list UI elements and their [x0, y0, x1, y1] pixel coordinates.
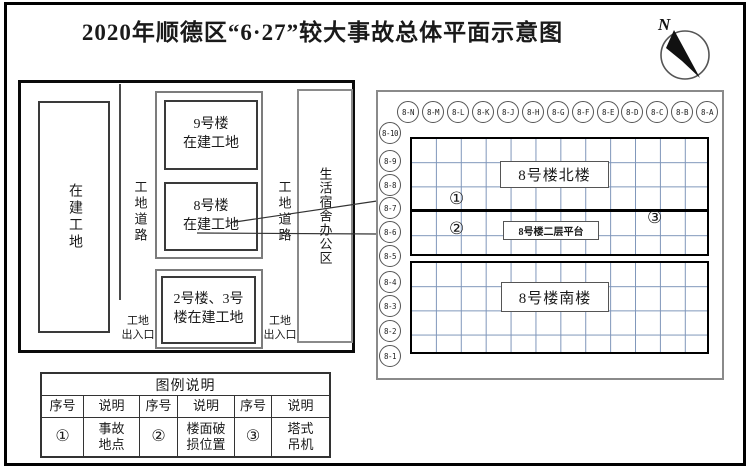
axis-circle-col: 8-G	[547, 101, 569, 123]
axis-circle-row: 8-1	[379, 345, 401, 367]
axis-circle-col: 8-A	[696, 101, 718, 123]
platform-label: 8号楼二层平台	[503, 221, 599, 240]
axis-circle-row: 8-10	[379, 122, 401, 144]
road-left-label: 工地道路	[131, 177, 149, 247]
accident-site-plan-diagram: 2020年顺德区“6·27”较大事故总体平面示意图 N 在建工地 工地道路 9号…	[0, 0, 752, 470]
zone-under-construction: 在建工地	[38, 101, 110, 333]
axis-circle-row: 8-5	[379, 245, 401, 267]
site-entrance-left-label: 工地 出入口	[115, 314, 161, 346]
site-entrance-right-label: 工地 出入口	[259, 314, 301, 346]
axis-circle-col: 8-D	[621, 101, 643, 123]
axis-circle-row: 8-2	[379, 320, 401, 342]
axis-circle-row: 8-8	[379, 174, 401, 196]
axis-circle-row: 8-9	[379, 150, 401, 172]
building-9-box: 9号楼 在建工地	[164, 100, 258, 170]
axis-circle-row: 8-6	[379, 221, 401, 243]
tower-crane-marker: ③	[647, 209, 662, 226]
axis-circle-col: 8-J	[497, 101, 519, 123]
zone-under-construction-label: 在建工地	[64, 183, 84, 251]
building-2-3-box: 2号楼、3号 楼在建工地	[161, 276, 256, 344]
site-plan-frame: 在建工地 工地道路 9号楼 在建工地 8号楼 在建工地 2号楼、3号 楼在建工地…	[18, 80, 355, 353]
legend-data-row: ① 事故 地点 ② 楼面破 损位置 ③ 塔式 吊机	[42, 418, 329, 456]
south-building-label: 8号楼南楼	[501, 282, 609, 312]
axis-circle-col: 8-C	[646, 101, 668, 123]
legend-title: 图例说明	[42, 374, 329, 396]
axis-circle-col: 8-H	[522, 101, 544, 123]
axis-circle-col: 8-E	[597, 101, 619, 123]
axis-circle-row: 8-4	[379, 271, 401, 293]
axis-circle-col: 8-F	[572, 101, 594, 123]
road-right-label: 工地道路	[275, 177, 293, 247]
building-8-box: 8号楼 在建工地	[164, 182, 258, 251]
legend-header-row: 序号 说明 序号 说明 序号 说明	[42, 396, 329, 418]
living-quarters-office-label: 生活宿舍办公区	[316, 167, 335, 265]
axis-circle-col: 8-M	[422, 101, 444, 123]
axis-circle-col: 8-N	[397, 101, 419, 123]
legend-table: 图例说明 序号 说明 序号 说明 序号 说明 ① 事故 地点 ② 楼面破 损位置…	[40, 372, 331, 458]
svg-text:N: N	[657, 15, 671, 34]
axis-circle-col: 8-L	[447, 101, 469, 123]
axis-circle-row: 8-7	[379, 197, 401, 219]
page-title: 2020年顺德区“6·27”较大事故总体平面示意图	[40, 14, 605, 46]
north-compass-icon: N	[652, 8, 727, 88]
axis-circle-col: 8-B	[671, 101, 693, 123]
axis-circle-row: 8-3	[379, 295, 401, 317]
living-quarters-office-zone: 生活宿舍办公区	[297, 89, 353, 343]
axis-circle-col: 8-K	[472, 101, 494, 123]
accident-location-marker: ①	[449, 190, 464, 207]
north-building-label: 8号楼北楼	[500, 161, 609, 188]
road-divider-line	[119, 84, 121, 300]
floor-damage-marker: ②	[449, 220, 464, 237]
